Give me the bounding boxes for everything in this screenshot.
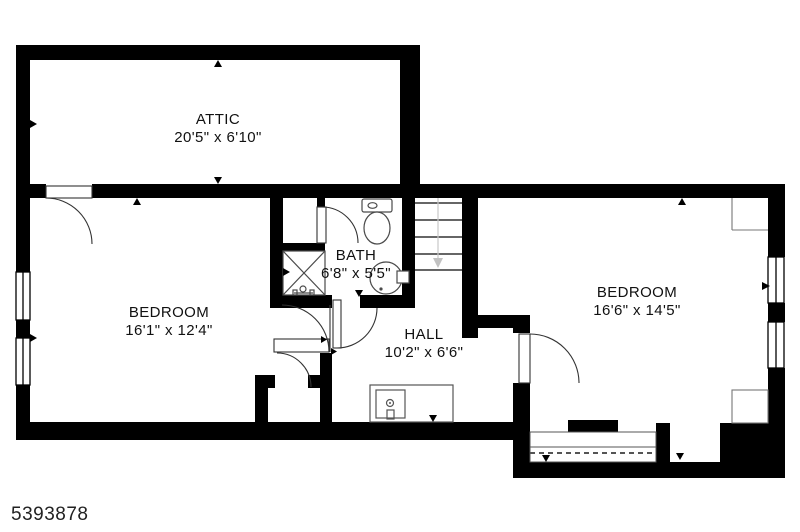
room-name: BATH (321, 247, 391, 265)
room-name: BEDROOM (593, 284, 680, 302)
window-right-1 (768, 257, 784, 303)
door-bath (317, 207, 358, 243)
room-dims: 20'5" x 6'10" (174, 129, 261, 147)
window-left-1 (16, 272, 30, 320)
window-left-2 (16, 338, 30, 385)
door-attic (46, 186, 92, 244)
closet-top-right (732, 198, 768, 230)
door-bedroom-right (519, 334, 579, 383)
room-dims: 16'1" x 12'4" (125, 322, 212, 340)
room-name: ATTIC (174, 111, 261, 129)
room-label-bedroom-left: BEDROOM 16'1" x 12'4" (125, 304, 212, 340)
room-dims: 10'2" x 6'6" (385, 344, 464, 362)
walls (16, 45, 785, 478)
room-dims: 6'8" x 5'5" (321, 265, 391, 283)
washer-icon (370, 385, 453, 422)
toilet-icon (362, 199, 392, 244)
doors (46, 186, 579, 387)
closets (732, 198, 768, 423)
room-label-hall: HALL 10'2" x 6'6" (385, 326, 464, 362)
room-name: HALL (385, 326, 464, 344)
fixtures (283, 199, 453, 422)
stairs-direction-arrow (433, 258, 443, 268)
window-right-2 (768, 322, 784, 368)
room-dims: 16'6" x 14'5" (593, 302, 680, 320)
shower-icon (283, 251, 325, 295)
closet-bottom-right (732, 390, 768, 423)
room-label-bedroom-right: BEDROOM 16'6" x 14'5" (593, 284, 680, 320)
room-name: BEDROOM (125, 304, 212, 322)
room-label-bath: BATH 6'8" x 5'5" (321, 247, 391, 283)
door-closet (277, 353, 311, 387)
window-bay-bottom (530, 432, 656, 462)
floor-plan-drawing (0, 0, 800, 532)
floor-plan: ATTIC 20'5" x 6'10" BEDROOM 16'1" x 12'4… (0, 0, 800, 532)
room-label-attic: ATTIC 20'5" x 6'10" (174, 111, 261, 147)
door-bedroom-left (274, 305, 330, 352)
stairs (415, 198, 462, 270)
listing-id: 5393878 (11, 504, 88, 526)
